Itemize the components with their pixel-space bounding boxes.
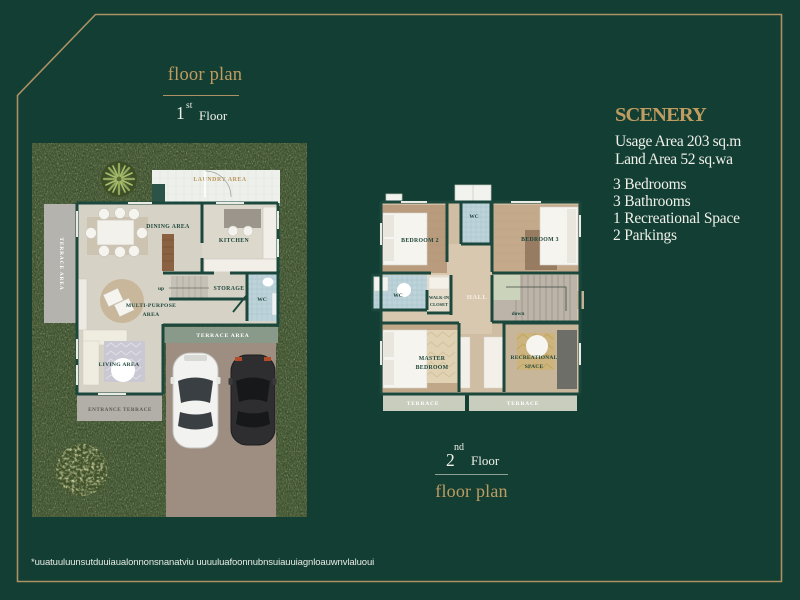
svg-text:BEDROOM 2: BEDROOM 2 <box>401 238 439 244</box>
svg-text:WC: WC <box>257 297 267 303</box>
svg-text:TERRACE: TERRACE <box>507 401 540 407</box>
svg-text:BEDROOM: BEDROOM <box>416 365 449 371</box>
svg-text:up: up <box>158 286 164 292</box>
svg-text:STORAGE: STORAGE <box>213 286 244 292</box>
svg-text:KITCHEN: KITCHEN <box>219 238 250 244</box>
svg-text:BEDROOM 3: BEDROOM 3 <box>521 237 559 243</box>
svg-text:CLOSET: CLOSET <box>430 302 448 307</box>
svg-text:WC: WC <box>469 214 479 220</box>
svg-text:TERRACE: TERRACE <box>407 401 440 407</box>
svg-text:DINING AREA: DINING AREA <box>146 224 190 230</box>
svg-text:RECREATIONAL: RECREATIONAL <box>511 355 558 361</box>
svg-text:down: down <box>512 311 525 317</box>
svg-text:MASTER: MASTER <box>419 356 446 362</box>
svg-text:AREA: AREA <box>142 312 159 318</box>
svg-text:TERRACE AREA: TERRACE AREA <box>58 237 64 290</box>
svg-text:LIVING AREA: LIVING AREA <box>99 362 140 368</box>
svg-text:TERRACE AREA: TERRACE AREA <box>196 333 249 339</box>
svg-text:HALL: HALL <box>467 294 488 301</box>
svg-text:WC: WC <box>393 293 403 299</box>
svg-text:WALK-IN: WALK-IN <box>429 295 450 300</box>
svg-text:MULTI-PURPOSE: MULTI-PURPOSE <box>126 303 176 309</box>
svg-text:LAUNDRY AREA: LAUNDRY AREA <box>193 177 247 183</box>
svg-text:ENTRANCE TERRACE: ENTRANCE TERRACE <box>88 407 152 413</box>
svg-text:SPACE: SPACE <box>525 364 544 370</box>
